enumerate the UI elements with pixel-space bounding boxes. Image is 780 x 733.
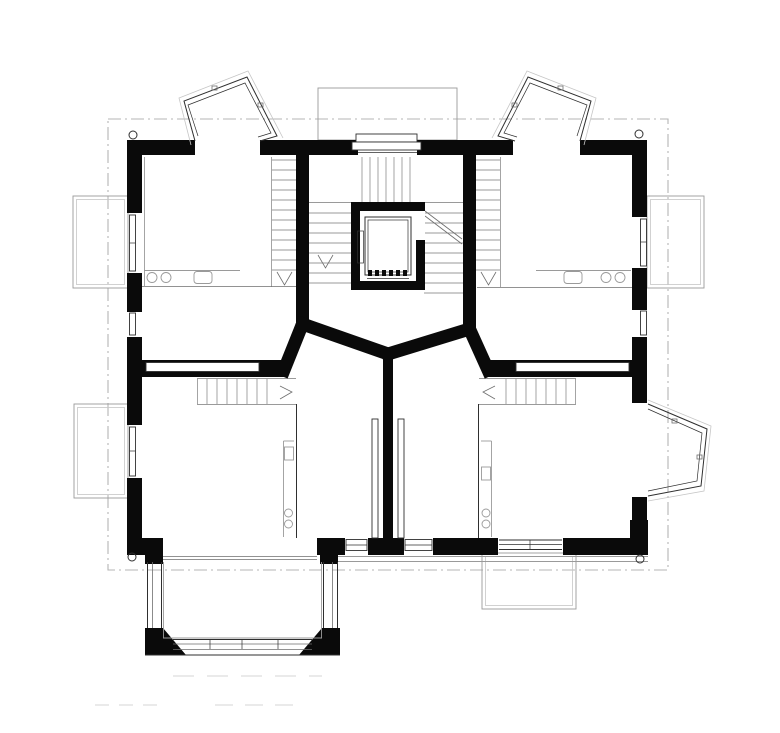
party-wall-leaf-left [372,419,378,538]
window-west-2 [130,313,136,335]
stairs-room-bottom-left [197,379,296,405]
stair-direction-arrow [277,272,292,285]
splayed-wall-left [303,324,389,354]
toilet [194,272,212,284]
toilet [564,272,582,284]
window-west-1 [130,215,136,271]
roof-dormer-plate-top [318,88,457,140]
splayed-wall-right-lower [470,329,489,370]
floor-plan-canvas [0,0,780,733]
floor-plan-drawing [0,0,780,733]
downpipe-ne [635,130,643,138]
fixtures-room-bottom-right [481,441,492,537]
stair-core-right-flight [424,211,463,293]
window-east-2 [641,311,647,335]
stair-core-left-flight [309,213,352,283]
downpipe-nw [129,131,137,139]
bathroom-fixtures-top-left [142,157,296,287]
hall-wall-east [463,155,476,333]
splayed-wall-left-lower [284,324,303,370]
stairs-room-top-right [476,157,501,287]
dormer-bay-top-left [179,71,283,145]
fixtures-room-bottom-left [284,441,295,537]
stair-direction-arrow [318,255,333,268]
balcony-left-upper [73,196,128,288]
terrace-paving-dashes [95,676,322,705]
stair-direction-arrow [483,386,495,399]
bay-pier-ne [320,555,338,564]
balcony-right-upper [647,196,704,288]
bay-pier-sw [145,628,186,655]
window-north-center [352,134,421,153]
window-south-1 [346,540,367,551]
bay-window-east [648,400,711,501]
party-wall-core [383,351,393,538]
elevator-door-opening [414,211,425,240]
stair-direction-arrow [280,386,292,399]
splayed-wall-right [388,329,470,354]
window-south-2 [405,540,432,551]
dormer-bay-top-right [492,71,596,145]
eaves-band-below-south-wall [333,557,648,562]
window-west-3 [130,427,136,476]
hall-wall-west [296,155,309,328]
stairs-room-top-left [272,157,297,287]
stair-core-top-flight [309,157,463,203]
stairs-room-bottom-right [479,379,576,405]
elevator [351,202,425,290]
window-east-1 [641,219,647,266]
window-south-3 [499,540,562,550]
bay-pier-se [299,628,340,655]
balcony-left-lower [74,404,128,498]
stair-direction-arrow [481,272,496,285]
party-wall-leaf-right [398,419,404,538]
headroom-line [425,211,462,239]
